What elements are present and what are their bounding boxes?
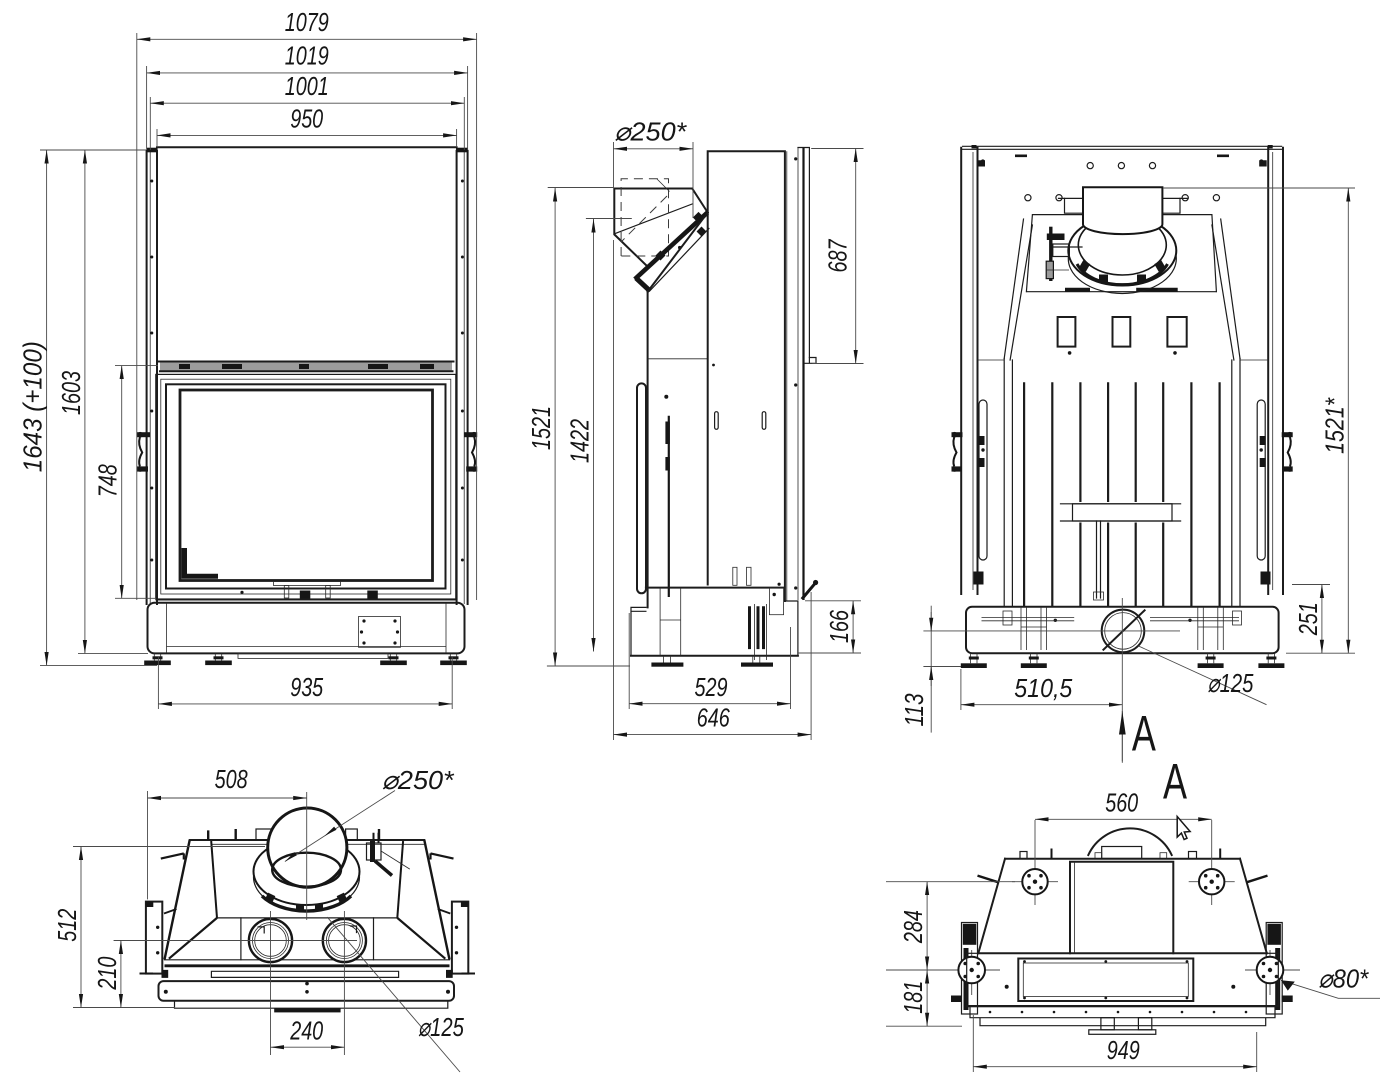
svg-text:⌀125: ⌀125 [1207, 668, 1253, 698]
svg-text:512: 512 [52, 908, 82, 941]
svg-text:166: 166 [824, 610, 854, 643]
svg-text:113: 113 [899, 693, 929, 726]
svg-text:1079: 1079 [285, 7, 329, 37]
svg-text:1001: 1001 [285, 71, 329, 101]
svg-text:510,5: 510,5 [1014, 673, 1072, 703]
svg-text:A: A [1132, 706, 1156, 762]
svg-text:1521*: 1521* [1319, 397, 1349, 454]
svg-text:1422: 1422 [565, 419, 595, 463]
svg-text:508: 508 [215, 764, 248, 794]
svg-text:560: 560 [1105, 787, 1138, 817]
svg-text:949: 949 [1107, 1035, 1140, 1065]
svg-text:240: 240 [289, 1015, 323, 1045]
svg-text:529: 529 [695, 672, 728, 702]
svg-text:1521: 1521 [526, 406, 556, 450]
svg-text:⌀250*: ⌀250* [614, 117, 687, 147]
svg-text:1603: 1603 [56, 371, 86, 415]
svg-text:⌀250*: ⌀250* [382, 765, 455, 795]
svg-text:A: A [1163, 754, 1187, 810]
svg-text:284: 284 [898, 910, 928, 944]
svg-text:687: 687 [823, 238, 853, 272]
svg-text:950: 950 [290, 104, 323, 134]
svg-text:1019: 1019 [285, 41, 329, 71]
svg-text:⌀80*: ⌀80* [1318, 964, 1369, 994]
svg-text:646: 646 [697, 703, 730, 733]
svg-text:⌀125: ⌀125 [418, 1012, 464, 1042]
svg-text:1643 (+100): 1643 (+100) [18, 341, 48, 472]
svg-text:210: 210 [92, 956, 122, 990]
svg-text:251: 251 [1293, 602, 1323, 636]
svg-text:181: 181 [898, 981, 928, 1014]
svg-text:935: 935 [290, 672, 323, 702]
svg-text:748: 748 [93, 464, 123, 497]
